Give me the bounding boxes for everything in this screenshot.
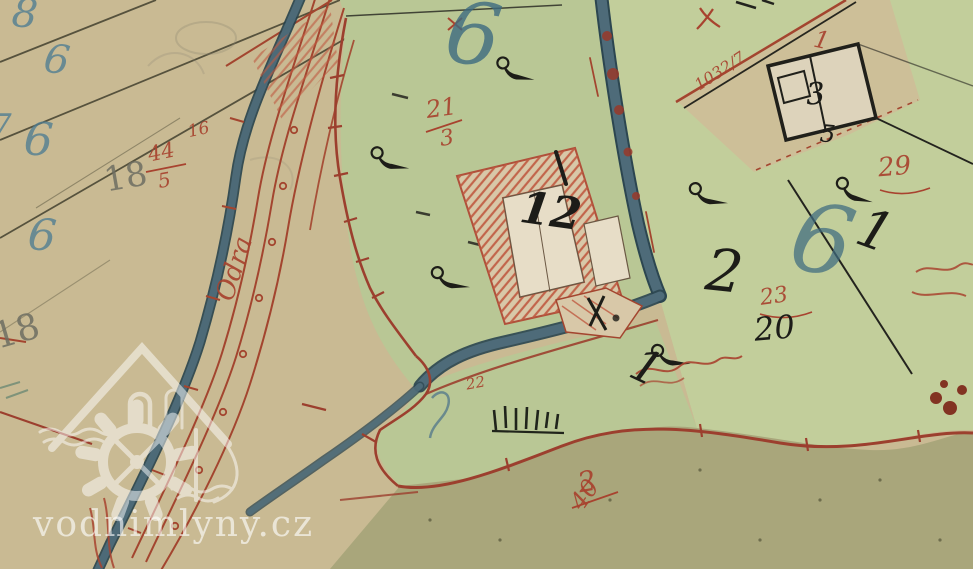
cadastral-map: 8 6 7 6 6 18 18 44 5 16 Odra 21 3 6 12 2… bbox=[0, 0, 973, 569]
watermark-text: vodnimlyny.cz bbox=[33, 504, 314, 545]
map-artwork bbox=[0, 0, 973, 569]
